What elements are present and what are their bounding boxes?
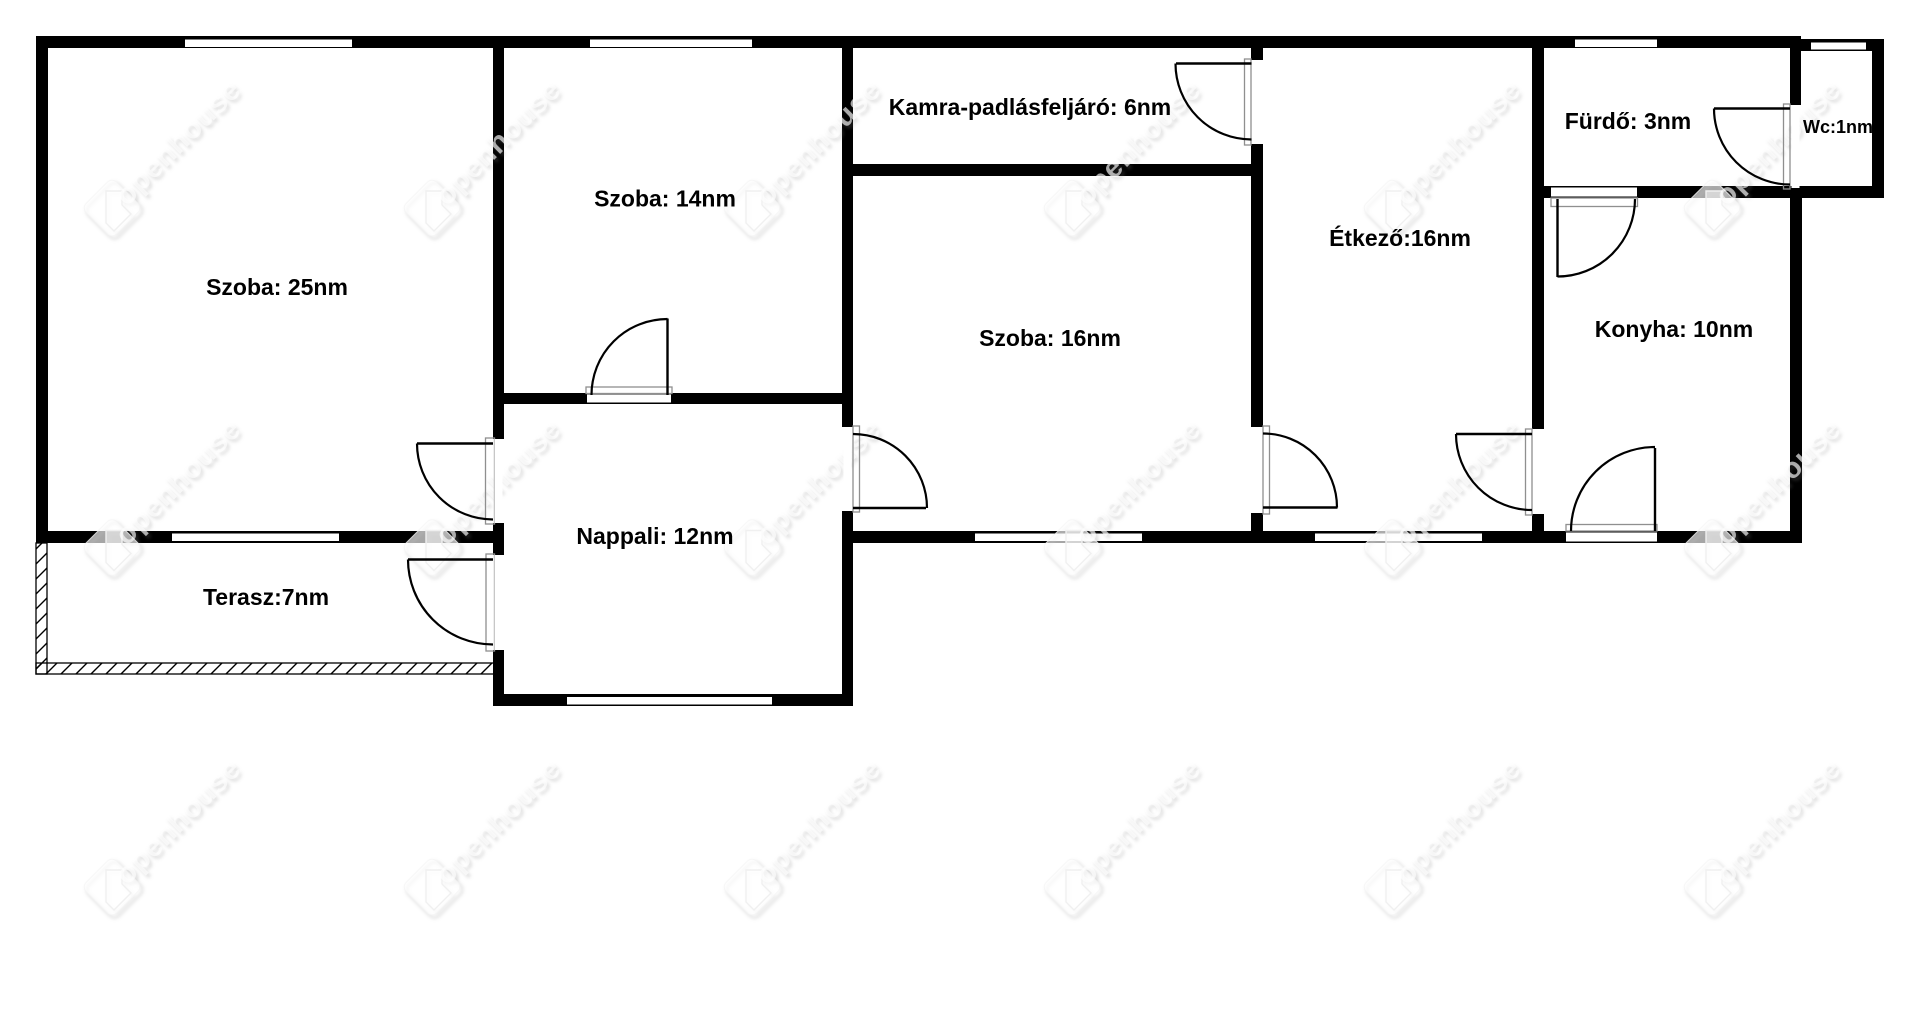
svg-text:Terasz:7nm: Terasz:7nm: [203, 584, 329, 610]
svg-text:Wc:1nm: Wc:1nm: [1803, 117, 1873, 137]
svg-text:Fürdő: 3nm: Fürdő: 3nm: [1565, 108, 1692, 134]
svg-text:Nappali: 12nm: Nappali: 12nm: [576, 523, 733, 549]
svg-text:Étkező:16nm: Étkező:16nm: [1329, 224, 1471, 251]
svg-text:Konyha: 10nm: Konyha: 10nm: [1595, 316, 1753, 342]
svg-text:Szoba: 25nm: Szoba: 25nm: [206, 274, 348, 300]
svg-text:Szoba: 16nm: Szoba: 16nm: [979, 325, 1121, 351]
svg-text:Szoba: 14nm: Szoba: 14nm: [594, 186, 736, 212]
svg-text:Kamra-padlásfeljáró: 6nm: Kamra-padlásfeljáró: 6nm: [889, 94, 1171, 120]
